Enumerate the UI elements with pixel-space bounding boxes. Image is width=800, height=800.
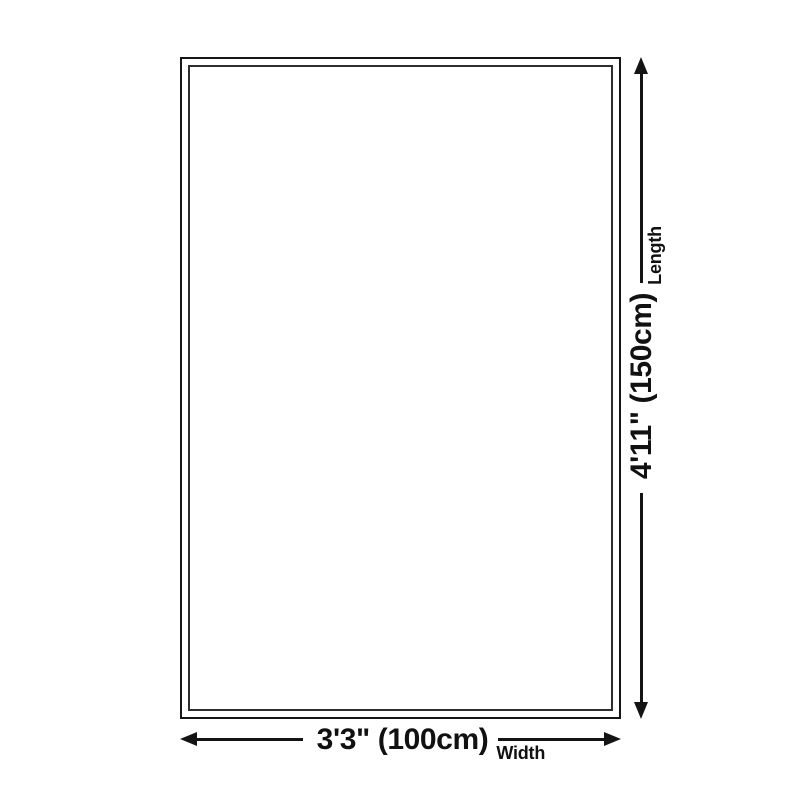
width-arrow-line-right: Width bbox=[498, 738, 604, 741]
dimension-diagram: 3'3" (100cm) Width 4'11" (150cm) Length bbox=[0, 0, 800, 800]
arrow-down-icon bbox=[634, 702, 648, 719]
width-label: Width bbox=[496, 743, 545, 764]
arrow-right-icon bbox=[604, 732, 621, 746]
rug-inner-border bbox=[188, 65, 613, 711]
arrow-left-icon bbox=[180, 732, 197, 746]
width-value: 3'3" (100cm) bbox=[317, 723, 489, 757]
arrow-up-icon bbox=[634, 57, 648, 74]
rug-outline bbox=[180, 57, 621, 719]
length-dimension-arrow: 4'11" (150cm) Length bbox=[619, 57, 663, 719]
length-value: 4'11" (150cm) bbox=[625, 293, 659, 479]
width-arrow-line-left bbox=[197, 738, 303, 741]
width-dimension-arrow: 3'3" (100cm) Width bbox=[180, 717, 621, 761]
length-arrow-line-top: Length bbox=[640, 74, 643, 283]
length-label: Length bbox=[645, 226, 666, 285]
length-arrow-line-bottom bbox=[640, 493, 643, 702]
